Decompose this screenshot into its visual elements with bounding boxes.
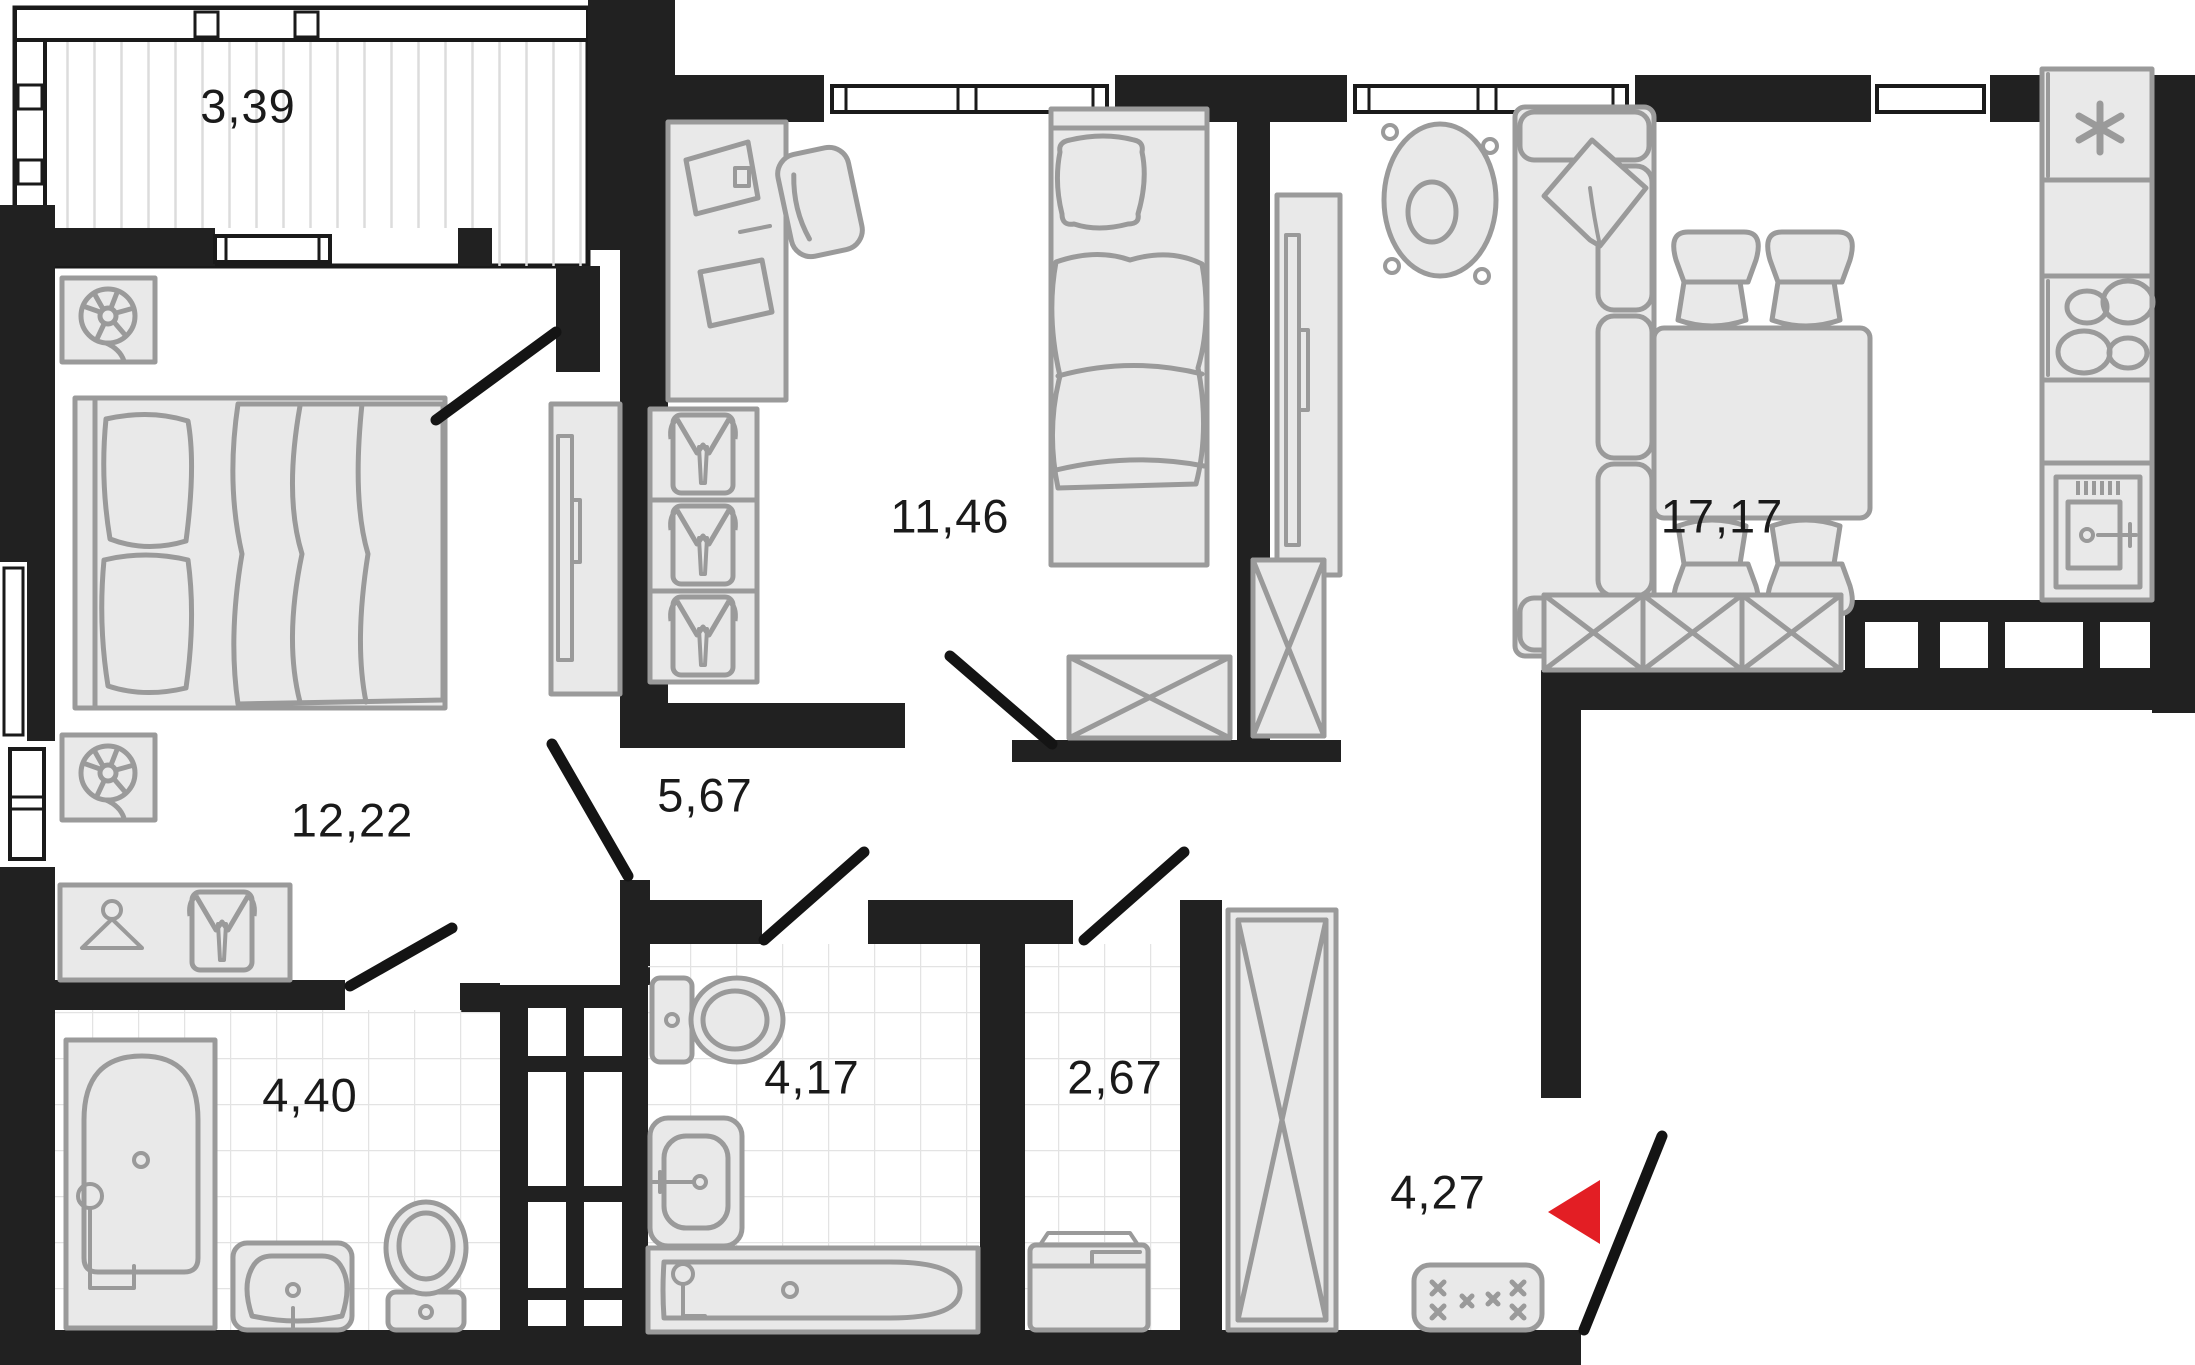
sofa-back-cushion [1598, 464, 1652, 596]
entrance-arrow-icon [1548, 1180, 1600, 1244]
bedroom-door-swing [552, 744, 628, 876]
stove-icon [2042, 276, 2153, 380]
room-label-entry: 4,27 [1390, 1165, 1485, 1220]
window-living-top-2 [1871, 75, 1990, 122]
window-recess-left [0, 562, 27, 741]
dining-chair-icon [1768, 232, 1853, 326]
ac-unit-icon [62, 735, 155, 820]
kitchen-sink-icon [2042, 463, 2152, 600]
storage-bench-icon [1069, 657, 1230, 738]
tv-stand-icon [1277, 195, 1340, 575]
window-bedroom-left [0, 741, 55, 867]
pillow-icon [102, 555, 192, 693]
wardrobe-x-icon [1253, 560, 1324, 736]
sofa-back-cushion [1598, 316, 1652, 458]
washing-machine-icon [1030, 1233, 1148, 1330]
sideboard-x-icon [1544, 595, 1841, 670]
bathtub-icon [648, 1248, 978, 1332]
room-label-balcony: 3,39 [200, 79, 295, 134]
balcony-door-swing [436, 332, 556, 420]
kitchen-units [2042, 69, 2153, 600]
laundry-fixtures [1030, 1233, 1148, 1330]
sink-icon [650, 1118, 742, 1246]
kitchen-counter [2042, 380, 2152, 463]
wardrobe-icon [650, 409, 757, 682]
wardrobe-icon [60, 885, 290, 980]
single-bed-icon [1051, 109, 1207, 565]
vent-wall-openings [1865, 622, 2150, 668]
floor-plan: 3,39 12,22 11,46 17,17 5,67 4,40 4,17 2,… [0, 0, 2195, 1365]
room-label-laundry: 2,67 [1067, 1050, 1162, 1105]
bedroom2-door-swing [950, 656, 1052, 744]
pillow-icon [104, 414, 192, 546]
sink-icon [233, 1243, 352, 1330]
floor-plan-drawing [0, 0, 2195, 1365]
kitchen-counter [2042, 180, 2152, 276]
paper-icon [700, 260, 772, 326]
doormat-icon [1414, 1265, 1542, 1330]
balcony-floor-hatch [45, 40, 588, 228]
tv-stand-icon [551, 404, 620, 694]
room-label-hallway: 5,67 [657, 768, 752, 823]
room-label-living-kitchen: 17,17 [1661, 489, 1784, 544]
toilet-icon [386, 1202, 466, 1330]
desk-icon [668, 122, 786, 400]
dining-table-icon [1654, 232, 1870, 614]
entry-fixtures [1228, 910, 1542, 1330]
bathroom-guest-door-swing [764, 852, 864, 940]
balcony-structure [15, 8, 588, 266]
blanket-icon [233, 404, 443, 704]
double-bed-icon [75, 398, 445, 708]
ac-unit-icon [62, 278, 155, 362]
balcony-door-sill [215, 236, 330, 262]
room-label-bathroom-guest: 4,17 [764, 1050, 859, 1105]
bedroom2-furniture [650, 109, 1230, 738]
room-label-bedroom: 12,22 [291, 793, 414, 848]
laundry-door-swing [1084, 852, 1184, 940]
bedroom-furniture [60, 278, 620, 980]
dining-chair-icon [1674, 232, 1759, 326]
sofa-icon [1515, 107, 1654, 656]
fridge-icon [2042, 69, 2152, 180]
room-label-bathroom: 4,40 [262, 1068, 357, 1123]
armchair-icon [1383, 124, 1497, 283]
bathroom-door-swing [350, 928, 452, 986]
room-label-bedroom2: 11,46 [890, 489, 1009, 544]
bathtub-icon [66, 1040, 215, 1328]
pillow-icon [1057, 136, 1144, 228]
hall-wardrobe-x-icon [1228, 910, 1336, 1330]
